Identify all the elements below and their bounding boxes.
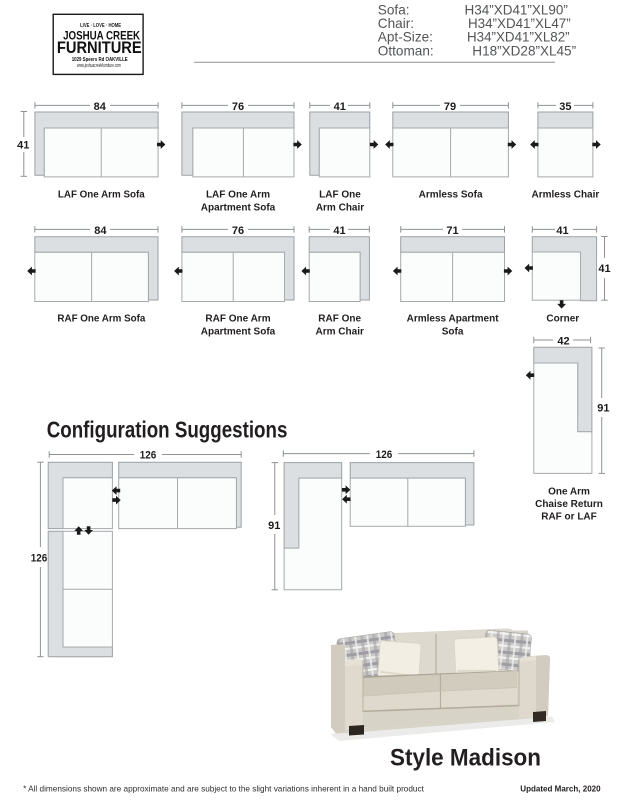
svg-text:Armless Sofa: Armless Sofa xyxy=(419,190,483,201)
svg-text:* All dimensions shown are app: * All dimensions shown are approximate a… xyxy=(23,785,425,794)
svg-text:H34”XD41”XL82”: H34”XD41”XL82” xyxy=(467,30,570,45)
svg-text:H18”XD28”XL45”: H18”XD28”XL45” xyxy=(472,43,576,58)
svg-text:LAF One: LAF One xyxy=(319,190,361,201)
svg-text:LIVE · LOVE · HOME: LIVE · LOVE · HOME xyxy=(80,23,121,29)
svg-text:41: 41 xyxy=(556,225,568,237)
svg-text:RAF One Arm: RAF One Arm xyxy=(205,314,270,325)
svg-text:FURNITURE: FURNITURE xyxy=(57,39,142,57)
svg-text:RAF One: RAF One xyxy=(318,314,361,325)
svg-text:Armless Chair: Armless Chair xyxy=(531,190,599,201)
svg-text:Ottoman:: Ottoman: xyxy=(378,43,434,58)
svg-text:126: 126 xyxy=(31,552,48,564)
svg-text:71: 71 xyxy=(446,225,458,237)
svg-text:79: 79 xyxy=(444,101,456,113)
svg-text:LAF One Arm Sofa: LAF One Arm Sofa xyxy=(58,190,145,201)
svg-text:Apartment Sofa: Apartment Sofa xyxy=(201,203,276,214)
svg-text:84: 84 xyxy=(94,101,107,113)
svg-text:RAF One Arm Sofa: RAF One Arm Sofa xyxy=(57,314,145,325)
svg-text:91: 91 xyxy=(597,402,609,414)
svg-text:Chaise Return: Chaise Return xyxy=(535,499,603,510)
svg-text:126: 126 xyxy=(376,449,393,461)
svg-text:42: 42 xyxy=(557,335,569,347)
svg-text:35: 35 xyxy=(559,101,571,113)
svg-text:76: 76 xyxy=(232,225,244,237)
svg-text:41: 41 xyxy=(598,263,610,275)
svg-text:One Arm: One Arm xyxy=(548,487,590,498)
svg-text:Corner: Corner xyxy=(546,314,579,325)
svg-text:Armless Apartment: Armless Apartment xyxy=(407,314,500,325)
svg-text:41: 41 xyxy=(333,225,345,237)
svg-text:91: 91 xyxy=(268,520,280,532)
svg-text:41: 41 xyxy=(17,139,29,151)
svg-text:Updated March, 2020: Updated March, 2020 xyxy=(520,785,601,794)
svg-text:126: 126 xyxy=(140,450,157,462)
svg-text:84: 84 xyxy=(94,225,107,237)
svg-text:www.joshuacreekfurniture.com: www.joshuacreekfurniture.com xyxy=(77,63,121,69)
svg-text:Arm Chair: Arm Chair xyxy=(316,327,364,338)
svg-text:Arm Chair: Arm Chair xyxy=(316,203,364,214)
svg-text:Configuration Suggestions: Configuration Suggestions xyxy=(47,417,288,443)
svg-text:Sofa: Sofa xyxy=(442,327,464,338)
svg-text:RAF or LAF: RAF or LAF xyxy=(541,512,597,523)
svg-text:41: 41 xyxy=(334,101,346,113)
svg-text:LAF One Arm: LAF One Arm xyxy=(206,190,270,201)
svg-text:76: 76 xyxy=(232,101,244,113)
svg-text:Apt-Size:: Apt-Size: xyxy=(378,30,433,45)
svg-text:Style Madison: Style Madison xyxy=(390,745,541,772)
svg-text:Apartment Sofa: Apartment Sofa xyxy=(201,327,276,338)
